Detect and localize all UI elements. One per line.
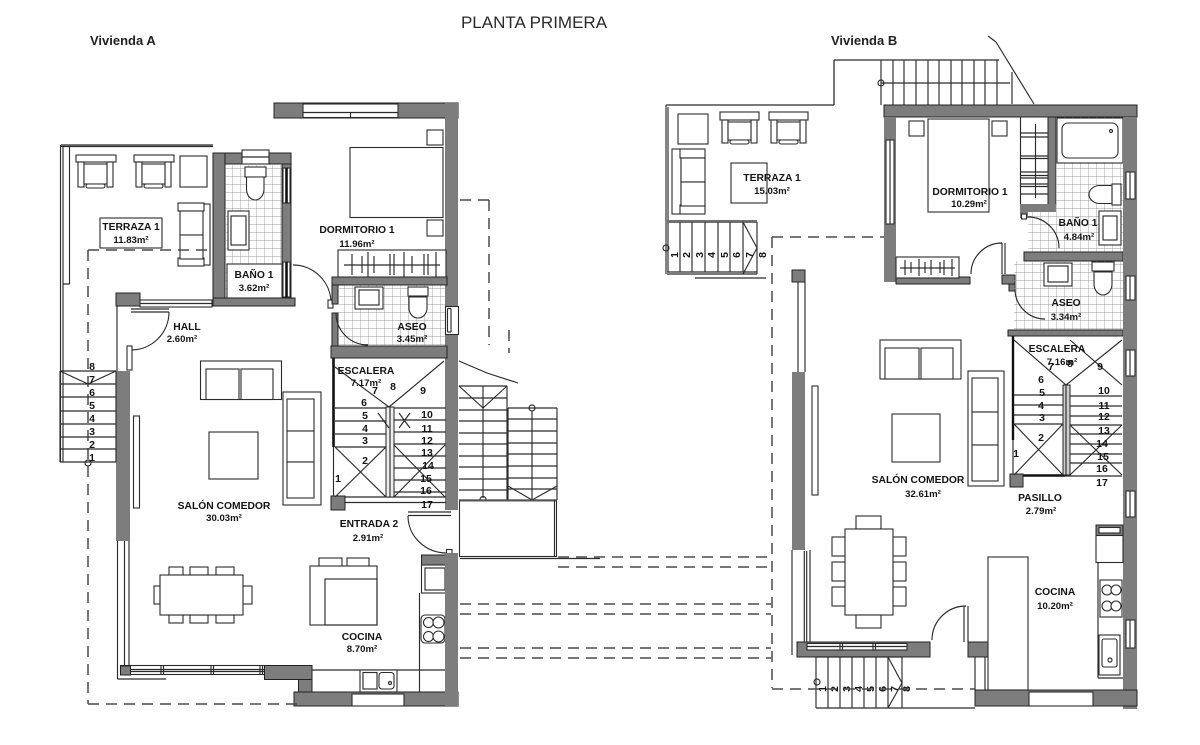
svg-text:15: 15 xyxy=(1097,451,1109,463)
svg-text:7: 7 xyxy=(744,252,756,258)
svg-text:1: 1 xyxy=(1013,448,1019,460)
svg-text:ESCALERA: ESCALERA xyxy=(1029,344,1086,355)
svg-text:11: 11 xyxy=(421,423,432,435)
svg-text:3: 3 xyxy=(1039,412,1045,424)
svg-text:5: 5 xyxy=(89,400,95,412)
svg-text:5: 5 xyxy=(719,252,731,258)
svg-text:14: 14 xyxy=(422,460,434,472)
svg-text:6: 6 xyxy=(361,397,367,409)
svg-text:4: 4 xyxy=(89,413,95,425)
svg-text:3: 3 xyxy=(89,426,95,438)
svg-text:ESCALERA: ESCALERA xyxy=(338,366,395,377)
svg-text:3.62m²: 3.62m² xyxy=(239,283,269,294)
svg-text:32.61m²: 32.61m² xyxy=(905,489,941,500)
svg-text:12: 12 xyxy=(421,435,433,447)
svg-text:6: 6 xyxy=(1038,374,1044,386)
svg-text:7: 7 xyxy=(1048,361,1054,373)
svg-text:14: 14 xyxy=(1096,438,1108,450)
svg-text:BAÑO 1: BAÑO 1 xyxy=(1059,216,1098,229)
svg-text:2.79m²: 2.79m² xyxy=(1026,506,1056,517)
svg-text:4: 4 xyxy=(706,252,718,258)
svg-text:HALL: HALL xyxy=(173,322,200,333)
svg-text:8: 8 xyxy=(1067,358,1073,370)
svg-text:DORMITORIO 1: DORMITORIO 1 xyxy=(932,187,1008,198)
svg-text:COCINA: COCINA xyxy=(1035,587,1076,598)
svg-text:8: 8 xyxy=(89,361,95,373)
svg-text:4: 4 xyxy=(1038,400,1044,412)
svg-text:2: 2 xyxy=(362,455,368,467)
svg-text:SALÓN COMEDOR: SALÓN COMEDOR xyxy=(178,499,271,512)
svg-text:6: 6 xyxy=(89,387,95,399)
svg-text:TERRAZA 1: TERRAZA 1 xyxy=(102,222,160,233)
svg-text:15: 15 xyxy=(420,473,432,485)
svg-text:4.84m²: 4.84m² xyxy=(1064,232,1094,243)
svg-text:5: 5 xyxy=(1039,387,1045,399)
svg-text:11.83m²: 11.83m² xyxy=(113,235,148,246)
svg-text:8: 8 xyxy=(390,381,396,393)
svg-text:3.45m²: 3.45m² xyxy=(397,334,427,345)
svg-text:10: 10 xyxy=(1098,385,1110,397)
svg-text:8: 8 xyxy=(757,252,769,258)
svg-text:9: 9 xyxy=(1097,361,1103,373)
svg-text:1: 1 xyxy=(335,473,341,485)
svg-text:30.03m²: 30.03m² xyxy=(206,513,242,524)
svg-text:17: 17 xyxy=(421,499,433,511)
svg-text:16: 16 xyxy=(420,485,432,497)
svg-text:15.03m²: 15.03m² xyxy=(754,186,790,197)
svg-text:TERRAZA 1: TERRAZA 1 xyxy=(743,173,801,184)
svg-text:17: 17 xyxy=(1096,477,1108,489)
svg-text:PASILLO: PASILLO xyxy=(1018,493,1062,504)
svg-text:3: 3 xyxy=(362,435,368,447)
svg-text:3: 3 xyxy=(694,252,706,258)
svg-text:ENTRADA 2: ENTRADA 2 xyxy=(340,519,399,530)
svg-text:5: 5 xyxy=(362,410,368,422)
svg-text:1: 1 xyxy=(89,452,95,464)
svg-text:2.91m²: 2.91m² xyxy=(353,533,383,544)
svg-text:1: 1 xyxy=(669,252,681,258)
svg-text:11.96m²: 11.96m² xyxy=(339,239,374,250)
svg-text:13: 13 xyxy=(421,447,433,459)
svg-text:2: 2 xyxy=(1038,432,1044,444)
svg-text:7: 7 xyxy=(372,385,378,397)
svg-text:ASEO: ASEO xyxy=(1051,298,1080,309)
svg-text:10.20m²: 10.20m² xyxy=(1037,601,1073,612)
svg-text:12: 12 xyxy=(1098,411,1110,423)
svg-text:2: 2 xyxy=(89,439,95,451)
svg-text:PLANTA PRIMERA: PLANTA PRIMERA xyxy=(461,13,608,32)
svg-text:6: 6 xyxy=(731,252,743,258)
svg-text:2: 2 xyxy=(681,252,693,258)
svg-text:Vivienda A: Vivienda A xyxy=(90,33,156,48)
svg-text:BAÑO 1: BAÑO 1 xyxy=(235,268,274,281)
svg-text:8.70m²: 8.70m² xyxy=(347,644,377,655)
svg-text:2.60m²: 2.60m² xyxy=(167,334,197,345)
svg-text:13: 13 xyxy=(1098,425,1110,437)
svg-text:7: 7 xyxy=(89,374,95,386)
svg-text:COCINA: COCINA xyxy=(342,632,383,643)
svg-text:16: 16 xyxy=(1096,463,1108,475)
svg-text:9: 9 xyxy=(420,385,426,397)
svg-text:Vivienda B: Vivienda B xyxy=(831,33,897,48)
svg-text:DORMITORIO 1: DORMITORIO 1 xyxy=(319,225,395,236)
svg-text:3.34m²: 3.34m² xyxy=(1051,312,1081,323)
svg-text:10.29m²: 10.29m² xyxy=(951,199,987,210)
svg-text:SALÓN COMEDOR: SALÓN COMEDOR xyxy=(872,473,965,486)
svg-text:10: 10 xyxy=(421,409,433,421)
svg-text:4: 4 xyxy=(362,423,368,435)
svg-text:ASEO: ASEO xyxy=(397,322,426,333)
